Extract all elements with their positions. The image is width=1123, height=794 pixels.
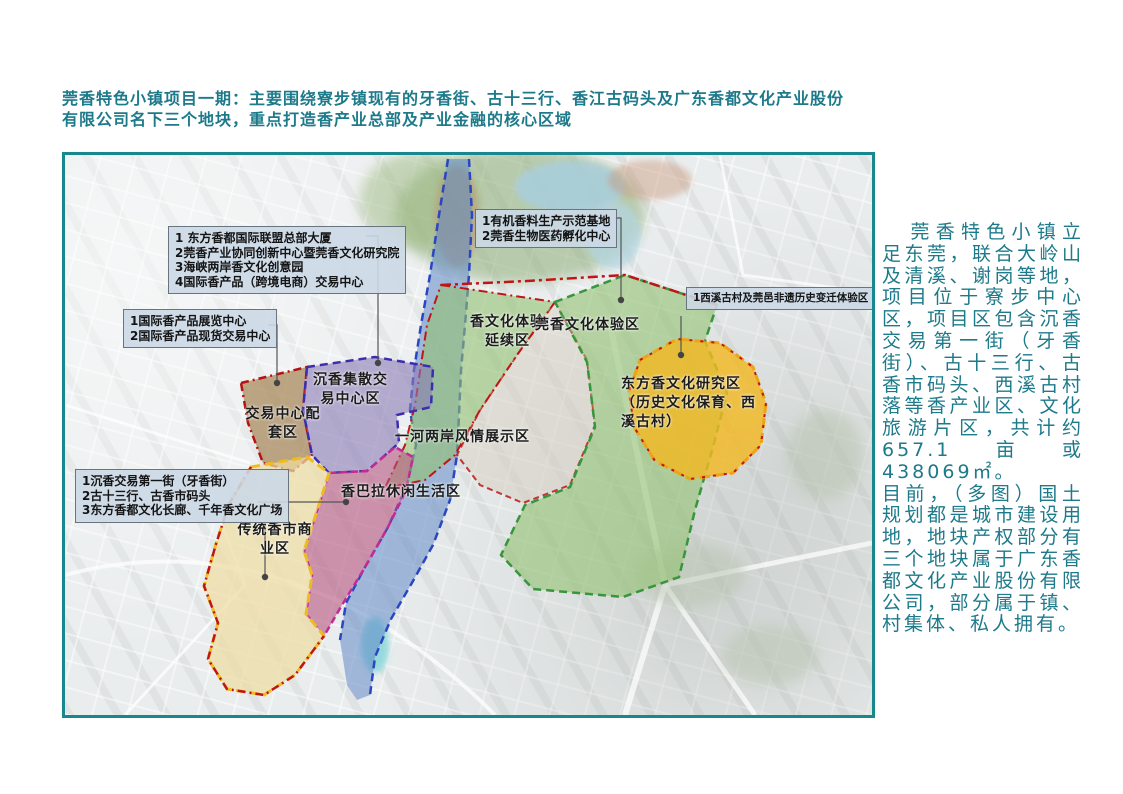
zone-label-line: 溪古村） xyxy=(621,413,756,432)
zone-label-trading-support: 交易中心配 套区 xyxy=(239,405,327,443)
zone-label-line: 莞香文化体验区 xyxy=(535,316,640,335)
callout-line: 1西溪古村及莞邑非遗历史变迁体验区 xyxy=(693,292,868,305)
zone-label-line: 传统香市商 xyxy=(231,521,319,540)
sidebar-description: 莞香特色小镇立足东莞，联合大岭山及清溪、谢岗等地，项目位于寮步中心区，项目区包含… xyxy=(882,222,1084,636)
callout-line: 2莞香产业协同创新中心暨莞香文化研究院 xyxy=(175,246,399,261)
callout-hq-complex: 1 东方香都国际联盟总部大厦 2莞香产业协同创新中心暨莞香文化研究院 3海峡两岸… xyxy=(168,226,406,294)
callout-line: 2古十三行、古香市码头 xyxy=(82,489,282,504)
sidebar-paragraph-2: 目前，（多图）国土规划都是城市建设用地，地块产权部分有三个地块属于广东香都文化产… xyxy=(882,484,1084,637)
zone-label-line: 交易中心配 xyxy=(239,405,327,424)
callout-line: 3东方香都文化长廊、千年香文化广场 xyxy=(82,503,282,518)
callout-line: 1沉香交易第一街（牙香街） xyxy=(82,474,282,489)
callout-expo-center: 1国际香产品展览中心 2国际香产品现货交易中心 xyxy=(123,309,277,348)
zone-label-guanxiang-experience: 莞香文化体验区 xyxy=(535,316,640,335)
zone-label-shangbala: 香巴拉休闲生活区 xyxy=(341,483,461,502)
zone-label-oriental-research: 东方香文化研究区 （历史文化保育、西 溪古村） xyxy=(621,375,756,432)
callout-bio-base: 1有机香料生产示范基地 2莞香生物医药孵化中心 xyxy=(475,209,617,248)
zone-label-chenxiang-trading: 沉香集散交 易中心区 xyxy=(303,371,398,409)
sidebar-paragraph-1: 莞香特色小镇立足东莞，联合大岭山及清溪、谢岗等地，项目位于寮步中心区，项目区包含… xyxy=(882,222,1084,484)
zone-label-line: 一河两岸风情展示区 xyxy=(395,428,530,447)
page-title: 莞香特色小镇项目一期：主要围绕寮步镇现有的牙香街、古十三行、香江古码头及广东香都… xyxy=(62,88,857,130)
callout-line: 1国际香产品展览中心 xyxy=(130,314,270,329)
callout-line: 2国际香产品现货交易中心 xyxy=(130,329,270,344)
zone-label-line: 套区 xyxy=(239,424,327,443)
zone-label-line: 香巴拉休闲生活区 xyxy=(341,483,461,502)
zone-label-line: 沉香集散交 xyxy=(303,371,398,390)
callout-xixi-village: 1西溪古村及莞邑非遗历史变迁体验区 xyxy=(686,287,875,310)
callout-incense-street: 1沉香交易第一街（牙香街） 2古十三行、古香市码头 3东方香都文化长廊、千年香文… xyxy=(75,469,289,523)
callout-line: 1 东方香都国际联盟总部大厦 xyxy=(175,231,399,246)
planning-map: 1 东方香都国际联盟总部大厦 2莞香产业协同创新中心暨莞香文化研究院 3海峡两岸… xyxy=(62,152,875,718)
zone-label-line: 东方香文化研究区 xyxy=(621,375,756,394)
callout-line: 3海峡两岸香文化创意园 xyxy=(175,260,399,275)
zone-label-line: （历史文化保育、西 xyxy=(621,394,756,413)
slide-page: { "title": { "text": "莞香特色小镇项目一期：主要围绕寮步镇… xyxy=(0,0,1123,794)
zone-label-traditional-market: 传统香市商 业区 xyxy=(231,521,319,559)
callout-line: 4国际香产品（跨境电商）交易中心 xyxy=(175,275,399,290)
zone-label-riverside-display: 一河两岸风情展示区 xyxy=(395,428,530,447)
callout-line: 1有机香料生产示范基地 xyxy=(482,214,610,229)
zone-label-line: 业区 xyxy=(231,540,319,559)
callout-line: 2莞香生物医药孵化中心 xyxy=(482,229,610,244)
